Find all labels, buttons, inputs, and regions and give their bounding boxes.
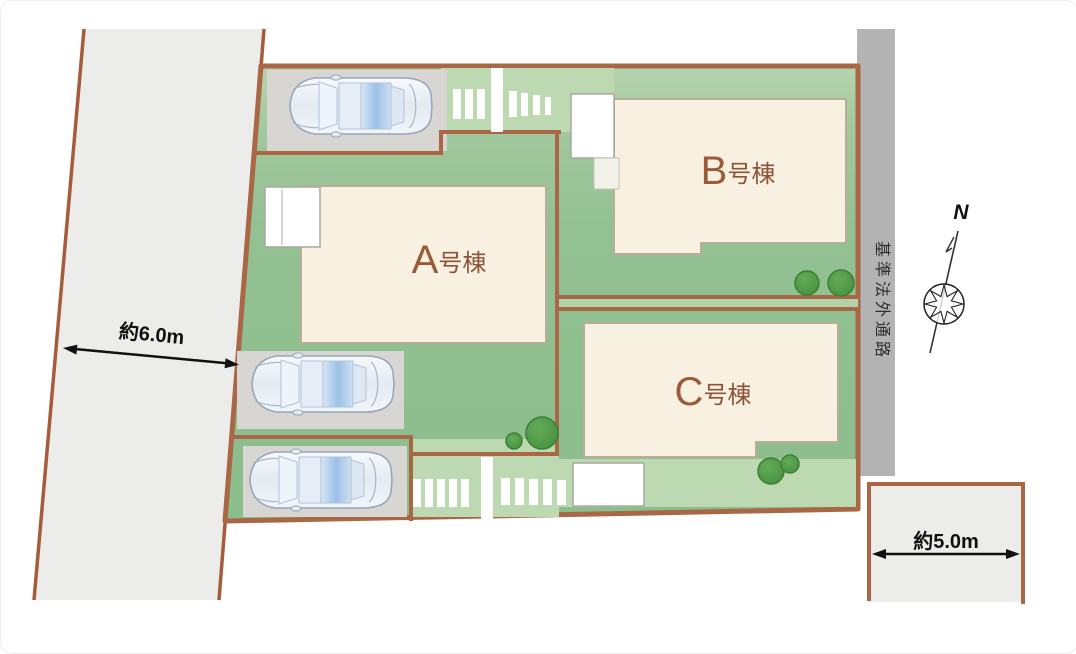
- car-top-view-icon: [250, 449, 392, 511]
- north-label: N: [953, 201, 969, 224]
- site-plan-canvas: A号棟 B号棟 C号棟 約6.0m 約5.0m 基準法外通路: [0, 0, 1076, 654]
- tree-icon: [506, 433, 522, 449]
- building-b-porch-step: [594, 158, 619, 189]
- compass-rose-icon: N: [924, 201, 969, 353]
- building-a: A号棟: [265, 186, 546, 343]
- building-a-porch: [265, 187, 320, 247]
- walkway-band-top: [491, 68, 503, 132]
- car-top-view-icon: [252, 353, 394, 415]
- tree-icon: [526, 417, 558, 449]
- passage-label: 基準法外通路: [873, 241, 891, 361]
- car-top-view-icon: [290, 75, 432, 137]
- dimension-label-5m: 約5.0m: [913, 529, 979, 553]
- building-b-porch: [571, 94, 614, 158]
- walkway-band-bottom: [481, 457, 493, 519]
- compass-needle-kink: [946, 237, 954, 252]
- tree-icon: [795, 271, 819, 295]
- building-c-porch: [573, 463, 644, 506]
- tree-icon: [758, 458, 784, 484]
- site-plan-svg: A号棟 B号棟 C号棟 約6.0m 約5.0m 基準法外通路: [1, 1, 1076, 653]
- tree-icon: [781, 455, 799, 473]
- tree-icon: [828, 270, 854, 296]
